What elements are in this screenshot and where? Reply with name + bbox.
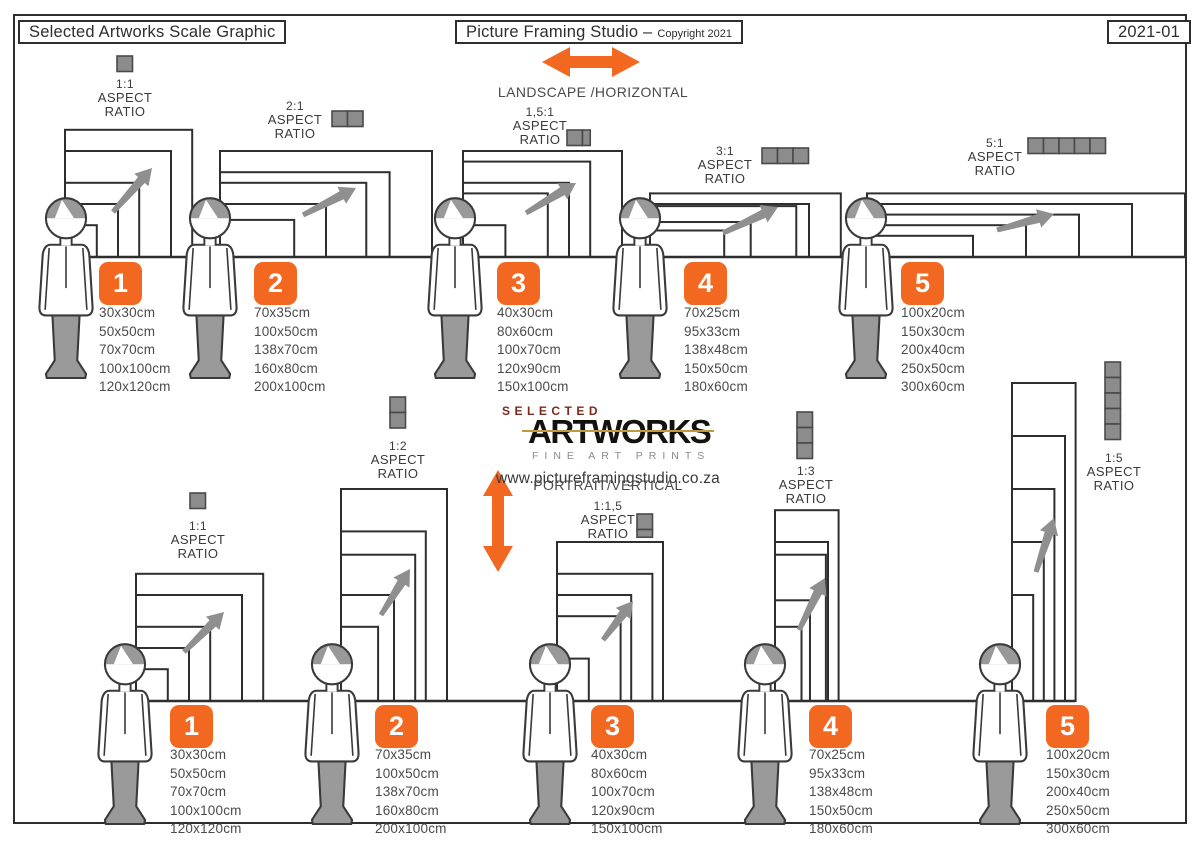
size-list-item: 250x50cm xyxy=(1046,802,1110,821)
size-list: 30x30cm50x50cm70x70cm100x100cm120x120cm xyxy=(170,746,242,839)
ratio-swatch xyxy=(1105,393,1121,409)
size-list-item: 150x30cm xyxy=(1046,765,1110,784)
size-list-item: 200x100cm xyxy=(254,378,326,397)
aspect-ratio-text: RATIO xyxy=(538,527,678,540)
size-list-item: 50x50cm xyxy=(99,323,171,342)
landscape-section-label: LANDSCAPE /HORIZONTAL xyxy=(498,84,688,100)
aspect-ratio-text: ASPECT xyxy=(655,158,795,171)
aspect-ratio-text: ASPECT xyxy=(328,453,468,466)
aspect-ratio-label: 1:1ASPECTRATIO xyxy=(55,78,195,118)
person-figure xyxy=(39,198,92,378)
ratio-swatch xyxy=(190,493,206,509)
ratio-swatch xyxy=(793,148,809,164)
size-list: 70x35cm100x50cm138x70cm160x80cm200x100cm xyxy=(254,304,326,397)
aspect-ratio-text: RATIO xyxy=(55,105,195,118)
aspect-ratio-text: 2:1 xyxy=(225,100,365,113)
person-figure xyxy=(839,198,892,378)
studio-title-box: Picture Framing Studio – Copyright 2021 xyxy=(455,20,743,44)
size-list-item: 120x120cm xyxy=(99,378,171,397)
ratio-swatch xyxy=(1105,409,1121,425)
aspect-ratio-label: 5:1ASPECTRATIO xyxy=(925,137,1065,177)
growth-arrow-icon xyxy=(111,168,152,214)
size-list-item: 138x70cm xyxy=(375,783,447,802)
aspect-ratio-text: RATIO xyxy=(736,492,876,505)
group-number-badge: 2 xyxy=(375,705,418,748)
aspect-ratio-label: 1:1,5ASPECTRATIO xyxy=(538,500,678,540)
edition-code: 2021-01 xyxy=(1118,23,1180,42)
ratio-swatch xyxy=(1075,138,1091,154)
aspect-ratio-label: 1:2ASPECTRATIO xyxy=(328,440,468,480)
ratio-swatch xyxy=(797,443,813,459)
aspect-ratio-text: ASPECT xyxy=(225,113,365,126)
person-figure xyxy=(428,198,481,378)
aspect-ratio-text: ASPECT xyxy=(470,119,610,132)
size-list-item: 95x33cm xyxy=(684,323,748,342)
person-figure xyxy=(98,644,151,824)
ratio-swatch xyxy=(390,397,406,413)
size-list: 70x35cm100x50cm138x70cm160x80cm200x100cm xyxy=(375,746,447,839)
aspect-ratio-text: 1:5 xyxy=(1044,452,1184,465)
growth-arrow-icon xyxy=(797,578,827,631)
aspect-ratio-text: 1,5:1 xyxy=(470,106,610,119)
ratio-swatch xyxy=(1105,362,1121,378)
frame-rect xyxy=(1012,595,1033,701)
size-list-item: 30x30cm xyxy=(170,746,242,765)
ratio-swatch xyxy=(390,413,406,429)
size-list: 70x25cm95x33cm138x48cm150x50cm180x60cm xyxy=(684,304,748,397)
brand-logo: SELECTED ARTWORKS FINE ART PRINTS www.pi… xyxy=(492,404,724,488)
landscape-arrow-icon xyxy=(542,47,640,77)
aspect-ratio-text: 5:1 xyxy=(925,137,1065,150)
size-list-item: 200x40cm xyxy=(1046,783,1110,802)
size-list-item: 80x60cm xyxy=(497,323,569,342)
size-list-item: 70x25cm xyxy=(684,304,748,323)
size-list-item: 100x20cm xyxy=(1046,746,1110,765)
size-list: 100x20cm150x30cm200x40cm250x50cm300x60cm xyxy=(1046,746,1110,839)
size-list-item: 138x48cm xyxy=(809,783,873,802)
size-list-item: 150x100cm xyxy=(497,378,569,397)
page-title: Selected Artworks Scale Graphic xyxy=(29,23,275,42)
portrait-section-label: PORTRAIT/VERTICAL xyxy=(533,477,682,493)
aspect-ratio-text: 3:1 xyxy=(655,145,795,158)
aspect-ratio-text: 1:1 xyxy=(128,520,268,533)
size-list-item: 200x100cm xyxy=(375,820,447,839)
growth-arrow-icon xyxy=(182,612,224,654)
ratio-swatch xyxy=(797,428,813,444)
aspect-ratio-text: RATIO xyxy=(925,164,1065,177)
size-list-item: 70x70cm xyxy=(170,783,242,802)
size-list-item: 100x50cm xyxy=(375,765,447,784)
size-list-item: 120x90cm xyxy=(591,802,663,821)
frame-rect xyxy=(557,542,663,701)
group-number-badge: 4 xyxy=(684,262,727,305)
person-figure xyxy=(973,644,1026,824)
logo-tagline-text: FINE ART PRINTS xyxy=(532,450,724,462)
size-list-item: 30x30cm xyxy=(99,304,171,323)
person-figure xyxy=(305,644,358,824)
size-list-item: 120x120cm xyxy=(170,820,242,839)
aspect-ratio-text: ASPECT xyxy=(55,91,195,104)
size-list-item: 70x35cm xyxy=(254,304,326,323)
aspect-ratio-text: RATIO xyxy=(470,133,610,146)
aspect-ratio-text: RATIO xyxy=(328,467,468,480)
size-list-item: 50x50cm xyxy=(170,765,242,784)
ratio-swatch xyxy=(1105,378,1121,394)
person-figure xyxy=(523,644,576,824)
group-number-badge: 4 xyxy=(809,705,852,748)
page-title-box: Selected Artworks Scale Graphic xyxy=(18,20,286,44)
ratio-swatch xyxy=(1105,424,1121,440)
size-list-item: 120x90cm xyxy=(497,360,569,379)
size-list-item: 300x60cm xyxy=(1046,820,1110,839)
aspect-ratio-text: 1:1 xyxy=(55,78,195,91)
size-list-item: 160x80cm xyxy=(254,360,326,379)
aspect-ratio-label: 1:5ASPECTRATIO xyxy=(1044,452,1184,492)
size-list: 40x30cm80x60cm100x70cm120x90cm150x100cm xyxy=(497,304,569,397)
size-list-item: 40x30cm xyxy=(591,746,663,765)
aspect-ratio-text: RATIO xyxy=(655,172,795,185)
aspect-ratio-text: ASPECT xyxy=(128,533,268,546)
size-list-item: 300x60cm xyxy=(901,378,965,397)
ratio-swatch xyxy=(117,56,133,72)
aspect-ratio-label: 2:1ASPECTRATIO xyxy=(225,100,365,140)
group-number-badge: 5 xyxy=(1046,705,1089,748)
person-figure xyxy=(613,198,666,378)
size-list-item: 80x60cm xyxy=(591,765,663,784)
aspect-ratio-label: 1:3ASPECTRATIO xyxy=(736,465,876,505)
aspect-ratio-text: RATIO xyxy=(1044,479,1184,492)
size-list: 70x25cm95x33cm138x48cm150x50cm180x60cm xyxy=(809,746,873,839)
logo-artworks-text: ARTWORKS xyxy=(528,418,710,445)
frame-rect xyxy=(463,162,590,257)
size-list-item: 138x48cm xyxy=(684,341,748,360)
size-list-item: 100x70cm xyxy=(497,341,569,360)
scale-graphic-page: 1:1ASPECTRATIO130x30cm50x50cm70x70cm100x… xyxy=(0,0,1200,842)
growth-arrow-icon xyxy=(302,187,356,217)
size-list-item: 100x20cm xyxy=(901,304,965,323)
size-list: 100x20cm150x30cm200x40cm250x50cm300x60cm xyxy=(901,304,965,397)
size-list-item: 70x70cm xyxy=(99,341,171,360)
size-list-item: 70x25cm xyxy=(809,746,873,765)
aspect-ratio-text: RATIO xyxy=(225,127,365,140)
size-list-item: 180x60cm xyxy=(809,820,873,839)
aspect-ratio-text: ASPECT xyxy=(1044,465,1184,478)
edition-box: 2021-01 xyxy=(1107,20,1191,44)
group-number-badge: 1 xyxy=(170,705,213,748)
aspect-ratio-text: ASPECT xyxy=(925,150,1065,163)
size-list-item: 160x80cm xyxy=(375,802,447,821)
aspect-ratio-text: 1:1,5 xyxy=(538,500,678,513)
size-list: 30x30cm50x50cm70x70cm100x100cm120x120cm xyxy=(99,304,171,397)
size-list-item: 200x40cm xyxy=(901,341,965,360)
size-list-item: 100x100cm xyxy=(99,360,171,379)
aspect-ratio-label: 1,5:1ASPECTRATIO xyxy=(470,106,610,146)
person-figure xyxy=(738,644,791,824)
ratio-swatch xyxy=(1090,138,1106,154)
size-list-item: 100x70cm xyxy=(591,783,663,802)
size-list-item: 40x30cm xyxy=(497,304,569,323)
size-list: 40x30cm80x60cm100x70cm120x90cm150x100cm xyxy=(591,746,663,839)
size-list-item: 70x35cm xyxy=(375,746,447,765)
frame-rect xyxy=(775,510,839,701)
size-list-item: 250x50cm xyxy=(901,360,965,379)
group-number-badge: 3 xyxy=(497,262,540,305)
group-number-badge: 1 xyxy=(99,262,142,305)
size-list-item: 100x50cm xyxy=(254,323,326,342)
size-list-item: 150x50cm xyxy=(684,360,748,379)
frame-rect xyxy=(341,531,426,701)
ratio-swatch xyxy=(797,412,813,428)
size-list-item: 150x30cm xyxy=(901,323,965,342)
person-figure xyxy=(183,198,236,378)
aspect-ratio-text: 1:2 xyxy=(328,440,468,453)
group-number-badge: 2 xyxy=(254,262,297,305)
size-list-item: 95x33cm xyxy=(809,765,873,784)
size-list-item: 138x70cm xyxy=(254,341,326,360)
group-number-badge: 5 xyxy=(901,262,944,305)
aspect-ratio-label: 1:1ASPECTRATIO xyxy=(128,520,268,560)
group-number-badge: 3 xyxy=(591,705,634,748)
copyright-text: Copyright 2021 xyxy=(657,25,732,40)
aspect-ratio-text: RATIO xyxy=(128,547,268,560)
size-list-item: 100x100cm xyxy=(170,802,242,821)
size-list-item: 150x50cm xyxy=(809,802,873,821)
aspect-ratio-text: 1:3 xyxy=(736,465,876,478)
aspect-ratio-text: ASPECT xyxy=(736,478,876,491)
aspect-ratio-label: 3:1ASPECTRATIO xyxy=(655,145,795,185)
aspect-ratio-text: ASPECT xyxy=(538,513,678,526)
size-list-item: 150x100cm xyxy=(591,820,663,839)
growth-arrow-icon xyxy=(601,601,633,642)
studio-name: Picture Framing Studio – xyxy=(466,23,652,42)
size-list-item: 180x60cm xyxy=(684,378,748,397)
